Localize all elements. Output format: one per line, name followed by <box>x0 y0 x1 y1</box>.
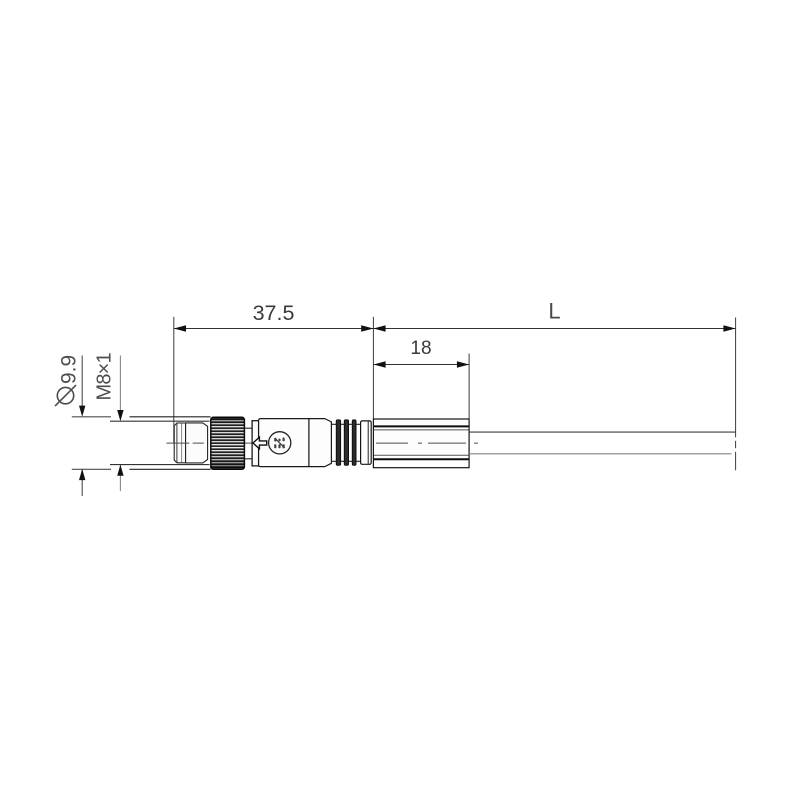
svg-text:37.5: 37.5 <box>253 301 295 325</box>
svg-text:9.9: 9.9 <box>58 355 81 384</box>
svg-text:M8×1: M8×1 <box>94 352 116 400</box>
svg-text:18: 18 <box>410 338 431 359</box>
svg-text:L: L <box>548 298 560 323</box>
